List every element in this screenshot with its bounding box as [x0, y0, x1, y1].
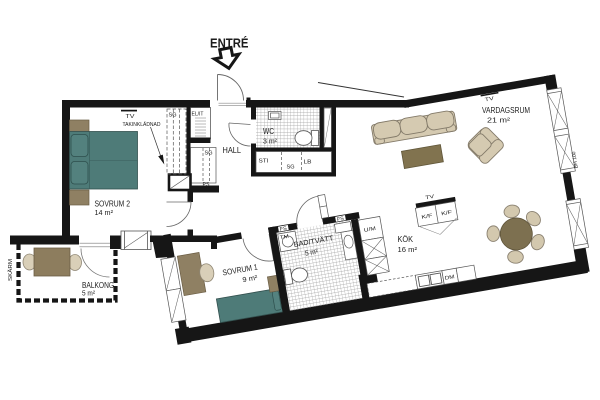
svg-text:SG: SG [205, 151, 213, 157]
svg-text:EL/IT: EL/IT [192, 112, 205, 118]
svg-text:KÖK: KÖK [398, 234, 414, 244]
svg-text:SG: SG [287, 165, 295, 171]
svg-text:WC: WC [263, 127, 274, 136]
svg-text:VARDAGSRUM: VARDAGSRUM [482, 106, 530, 115]
svg-text:TAKINKLÄDNAD: TAKINKLÄDNAD [123, 121, 161, 128]
svg-text:TV: TV [126, 114, 136, 120]
svg-text:SKÄRM: SKÄRM [7, 259, 14, 281]
svg-text:14 m²: 14 m² [95, 208, 114, 217]
svg-text:SG: SG [169, 113, 177, 119]
svg-text:LB: LB [304, 160, 313, 166]
svg-text:16 m²: 16 m² [398, 245, 418, 254]
svg-text:21 m²: 21 m² [487, 115, 511, 124]
svg-text:HALL: HALL [223, 146, 242, 155]
svg-text:STI: STI [259, 159, 269, 165]
svg-text:5 m²: 5 m² [82, 289, 96, 298]
svg-text:3 m²: 3 m² [263, 137, 278, 146]
